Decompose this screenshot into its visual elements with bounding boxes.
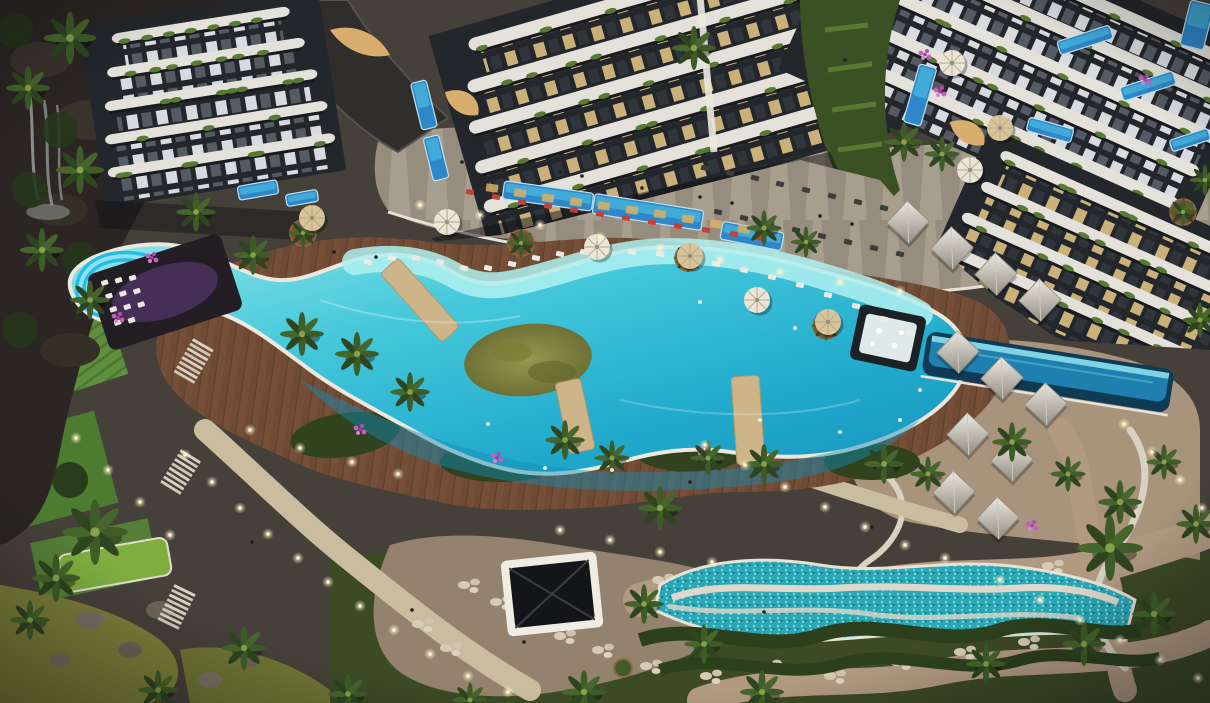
resort-aerial-render — [0, 0, 1210, 703]
vignette-overlay — [0, 0, 1210, 703]
render-canvas — [0, 0, 1210, 703]
